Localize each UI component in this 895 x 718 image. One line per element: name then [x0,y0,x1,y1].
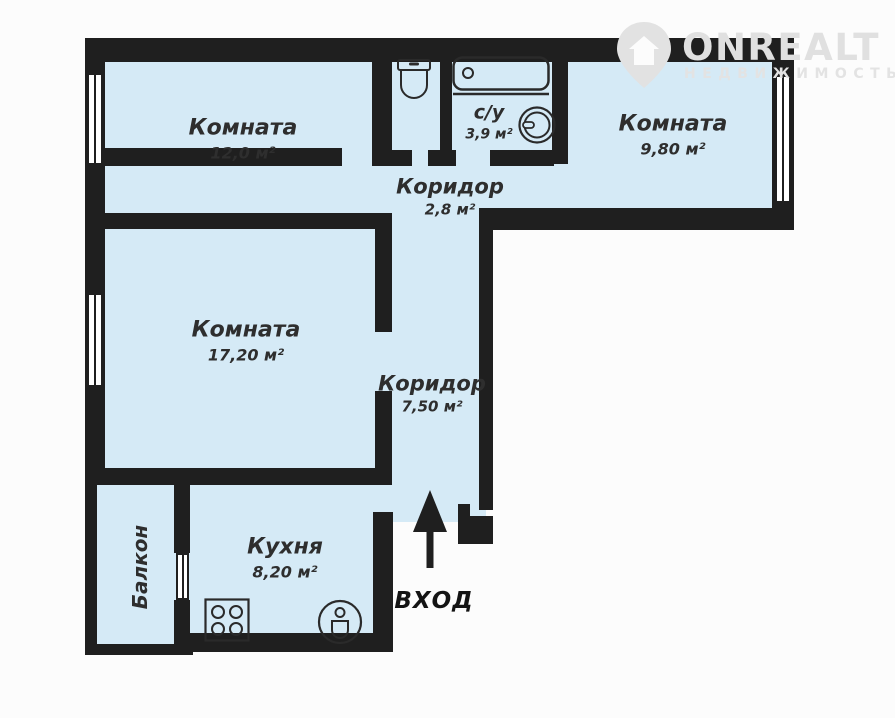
label-balcony: Балкон [128,525,152,610]
wall-san-bottom-2 [428,150,456,166]
wall-san-bottom-3 [490,150,554,166]
bathtub-icon [452,56,550,96]
logo-pin-icon [612,20,676,90]
room-name: Коридор [396,174,504,201]
wall-corridor-right [479,208,493,510]
wall-kitchen-top [85,468,392,485]
floorplan-canvas: Комната 12,0 м² с/у 3,9 м² Комната 9,80 … [0,0,895,718]
room-name: Комната [192,316,301,345]
wall-toilet-bath-divider [440,62,452,152]
stove-icon [204,598,250,642]
wall-rightwing-bottom [479,208,794,230]
wall-balcony-right-lower [174,600,190,646]
room-name: Коридор [378,371,486,398]
room-name: Комната [619,110,728,139]
label-room-9-8: Комната 9,80 м² [619,110,728,159]
label-san-uzel: с/у 3,9 м² [465,101,512,144]
wall-kitchen-right [373,512,393,652]
label-corridor-7-5: Коридор 7,50 м² [378,371,486,418]
entrance-arrow-icon [408,488,452,572]
room-area: 3,9 м² [465,125,512,143]
wall-balcony-right-upper [174,485,190,553]
room-name: Комната [189,114,298,143]
label-kitchen: Кухня 8,20 м² [247,533,323,582]
room-name: Кухня [247,533,323,562]
window-pane [782,77,784,201]
label-room-17-2: Комната 17,20 м² [192,316,301,365]
window-room12 [87,73,103,165]
window-pane [94,75,96,163]
window-room98 [775,75,791,203]
wall-entrance-right-b [458,516,493,544]
room-area: 9,80 м² [619,139,728,160]
wall-balcony-left [85,483,97,655]
window-balcony [176,553,189,600]
washing-machine-icon [517,104,557,146]
room-name: с/у [465,101,512,126]
label-room-12: Комната 12,0 м² [189,114,298,163]
wall-room17-right-upper [375,213,392,332]
window-room17 [87,293,103,387]
toilet-icon [394,58,434,104]
room-area: 7,50 м² [378,398,486,418]
wall-room17-top [85,213,377,229]
kitchen-sink-icon [316,598,364,646]
logo-tagline: НЕДВИЖИМОСТЬ [684,66,895,82]
wall-san-bottom-1 [392,150,412,166]
logo-brand: ONREALT [682,26,880,69]
wall-toilet-left [372,62,392,166]
room-area: 2,8 м² [396,201,504,221]
room-area: 17,20 м² [192,345,301,366]
room-area: 8,20 м² [247,562,323,583]
label-corridor-2-8: Коридор 2,8 м² [396,174,504,221]
label-entrance: ВХОД [394,588,473,614]
window-pane [94,295,96,385]
window-pane [182,555,184,598]
room-area: 12,0 м² [189,143,298,164]
